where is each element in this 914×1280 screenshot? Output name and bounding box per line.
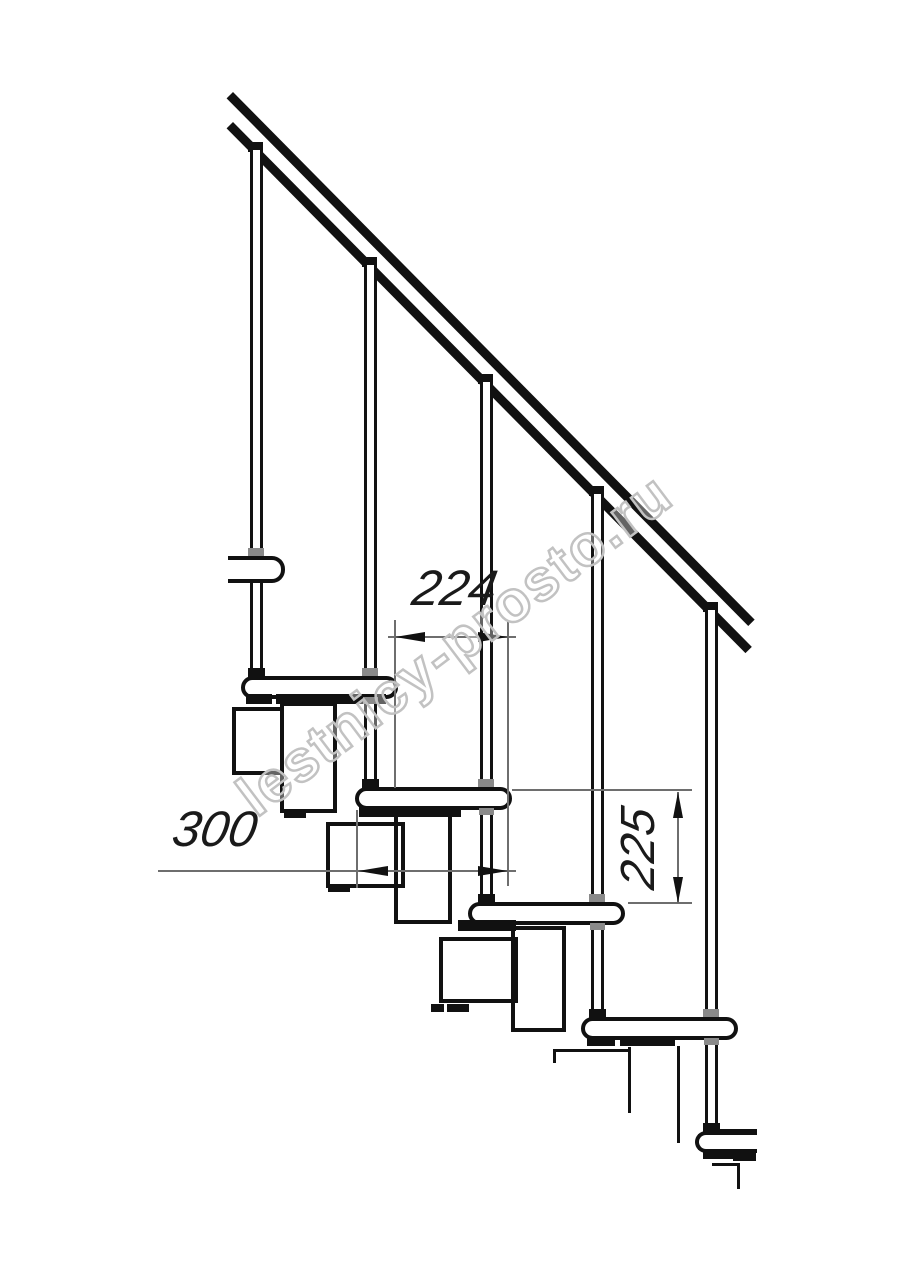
- baluster-collar: [589, 894, 605, 902]
- dim-224-ext-left: [394, 620, 396, 788]
- support-module-cut-line: [677, 1046, 680, 1143]
- baluster-2: [364, 265, 377, 787]
- dim-300-arrow-right-icon: [478, 866, 508, 876]
- baluster-step-connector: [248, 668, 265, 677]
- baluster-collar: [479, 808, 494, 815]
- dim-225-arrow-down-icon: [673, 877, 683, 903]
- baluster-collar: [703, 1009, 719, 1017]
- mounting-strip: [620, 1036, 675, 1046]
- module-bottom-pad: [328, 884, 350, 892]
- dim-225-ext-top: [512, 789, 692, 791]
- baluster-step-connector: [703, 1123, 720, 1132]
- dim-224-arrow-left-icon: [395, 632, 425, 642]
- mounting-strip: [359, 806, 461, 817]
- dim-300-arrow-left-icon: [358, 866, 388, 876]
- mounting-pad: [587, 1036, 615, 1046]
- technical-drawing-canvas: 224 300 225 lestnicy-prosto.ru: [0, 0, 914, 1280]
- support-module: [232, 707, 284, 775]
- baluster-3: [480, 382, 493, 902]
- support-module: [439, 937, 518, 1003]
- baluster-step-connector: [362, 779, 379, 788]
- dim-300-line: [158, 870, 516, 872]
- support-module-cut-line: [628, 1047, 631, 1113]
- baluster-1: [250, 150, 263, 676]
- module-bottom-pad: [447, 1004, 469, 1012]
- floor-edge-line: [712, 1163, 740, 1166]
- baluster-collar: [590, 923, 605, 930]
- baluster-collar: [478, 779, 494, 787]
- baluster-5: [705, 610, 718, 1131]
- dim-224-label: 224: [391, 563, 520, 613]
- support-module-cut-line: [553, 1049, 556, 1063]
- baluster-collar: [248, 548, 264, 556]
- mounting-pad: [246, 694, 272, 704]
- step-5-edge-line: [720, 1129, 757, 1132]
- step-0-partial: [228, 556, 285, 583]
- support-module-cut-line: [553, 1049, 631, 1052]
- support-module: [511, 926, 566, 1032]
- baluster-collar: [362, 668, 378, 676]
- baluster-step-connector: [589, 1009, 606, 1018]
- dim-224-ext-right: [507, 620, 509, 886]
- module-bottom-pad: [431, 1004, 444, 1012]
- mounting-strip: [458, 920, 516, 931]
- baluster-collar: [363, 697, 378, 704]
- mounting-pad: [703, 1150, 733, 1159]
- baluster-4: [591, 494, 604, 1017]
- dim-300-label: 300: [146, 804, 285, 854]
- dim-300-ext-left: [356, 810, 358, 888]
- dim-225-label: 225: [614, 784, 664, 913]
- module-bottom-pad: [284, 810, 306, 818]
- mounting-pad: [733, 1150, 756, 1161]
- support-module: [280, 702, 337, 813]
- support-module: [394, 813, 452, 924]
- baluster-step-connector: [478, 894, 495, 903]
- dim-224-arrow-right-icon: [478, 632, 508, 642]
- floor-edge-line: [737, 1163, 740, 1189]
- baluster-collar: [704, 1038, 719, 1045]
- dim-225-arrow-up-icon: [673, 792, 683, 818]
